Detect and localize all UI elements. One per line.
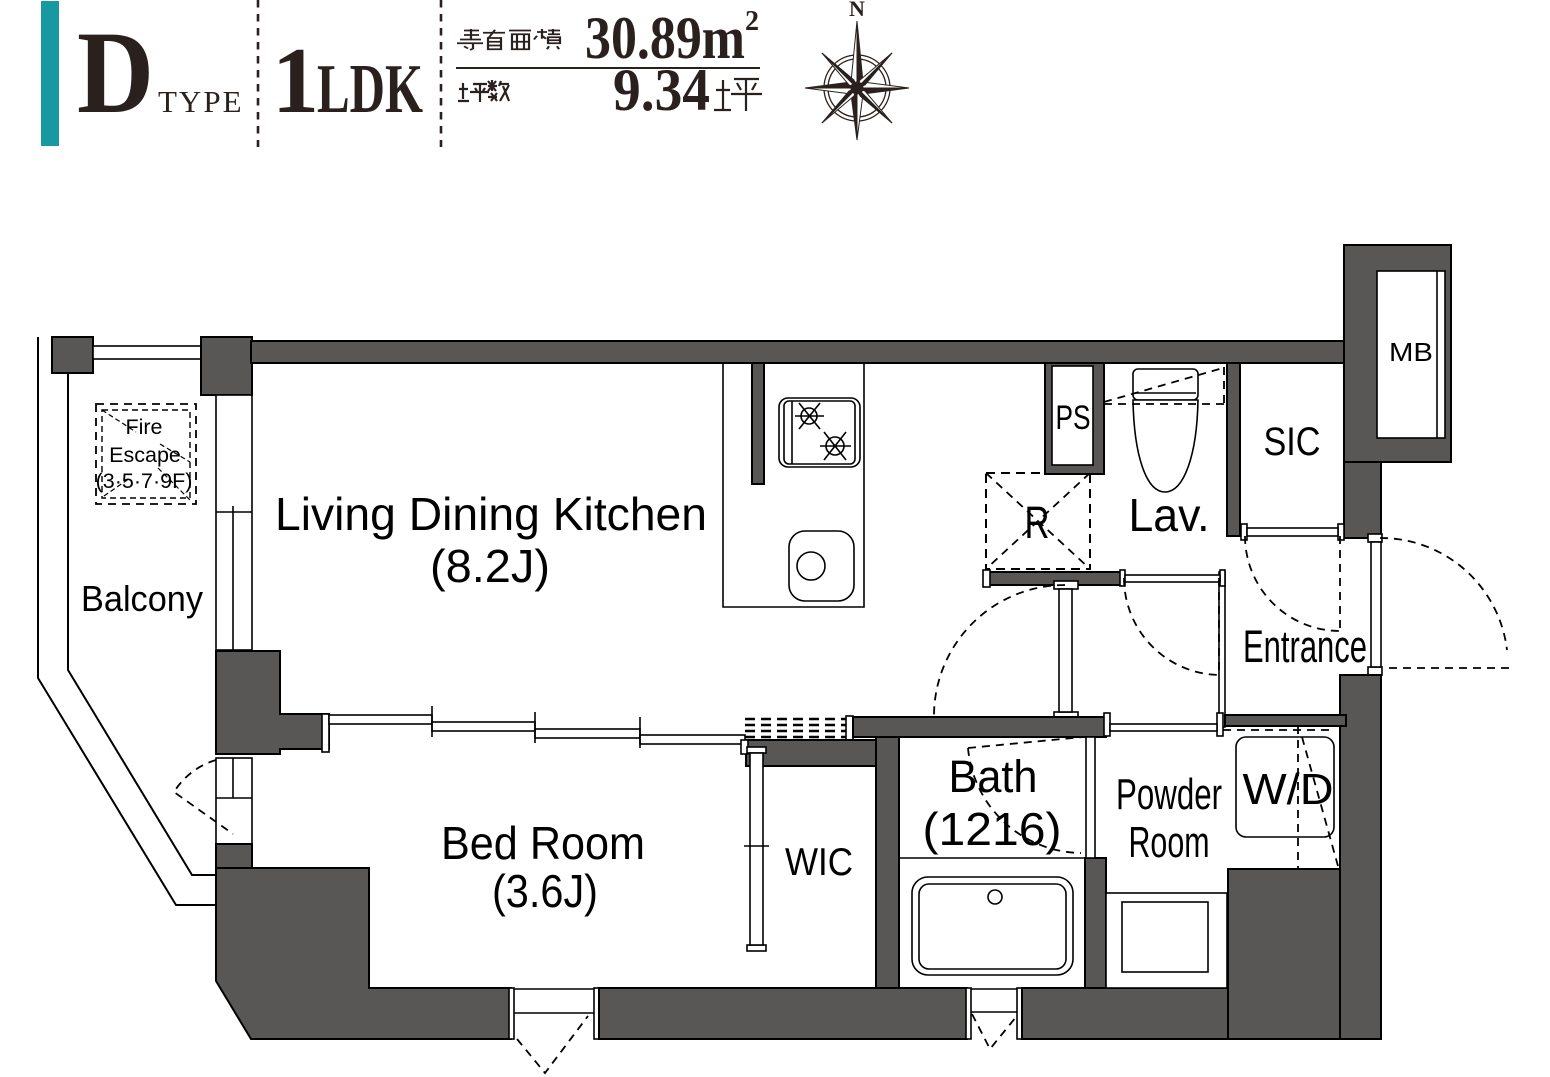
svg-text:Escape: Escape — [109, 443, 181, 467]
svg-text:SIC: SIC — [1264, 420, 1321, 464]
svg-text:(3·5·7·9F): (3·5·7·9F) — [96, 469, 193, 493]
svg-text:LDK: LDK — [317, 51, 423, 128]
svg-text:D: D — [77, 7, 154, 138]
svg-text:(1216): (1216) — [923, 803, 1062, 855]
svg-text:9.34: 9.34 — [613, 57, 710, 123]
svg-text:N: N — [849, 0, 865, 21]
svg-text:PS: PS — [1056, 399, 1091, 437]
svg-text:R: R — [1025, 497, 1050, 548]
svg-text:Fire: Fire — [125, 415, 162, 439]
svg-text:Bath: Bath — [949, 751, 1038, 802]
svg-text:Living Dining Kitchen: Living Dining Kitchen — [275, 488, 707, 540]
svg-text:Room: Room — [1129, 818, 1210, 867]
svg-text:1: 1 — [272, 29, 319, 133]
svg-text:Entrance: Entrance — [1243, 621, 1367, 672]
svg-text:MB: MB — [1389, 337, 1433, 367]
svg-text:(3.6J): (3.6J) — [492, 865, 598, 917]
svg-text:Bed Room: Bed Room — [441, 817, 645, 869]
svg-text:Lav.: Lav. — [1129, 489, 1210, 541]
svg-text:TYPE: TYPE — [158, 84, 244, 119]
svg-text:Balcony: Balcony — [81, 578, 203, 619]
svg-text:W/D: W/D — [1243, 765, 1334, 814]
svg-text:Powder: Powder — [1116, 770, 1222, 819]
svg-text:(8.2J): (8.2J) — [430, 540, 550, 592]
svg-text:WIC: WIC — [785, 841, 853, 884]
